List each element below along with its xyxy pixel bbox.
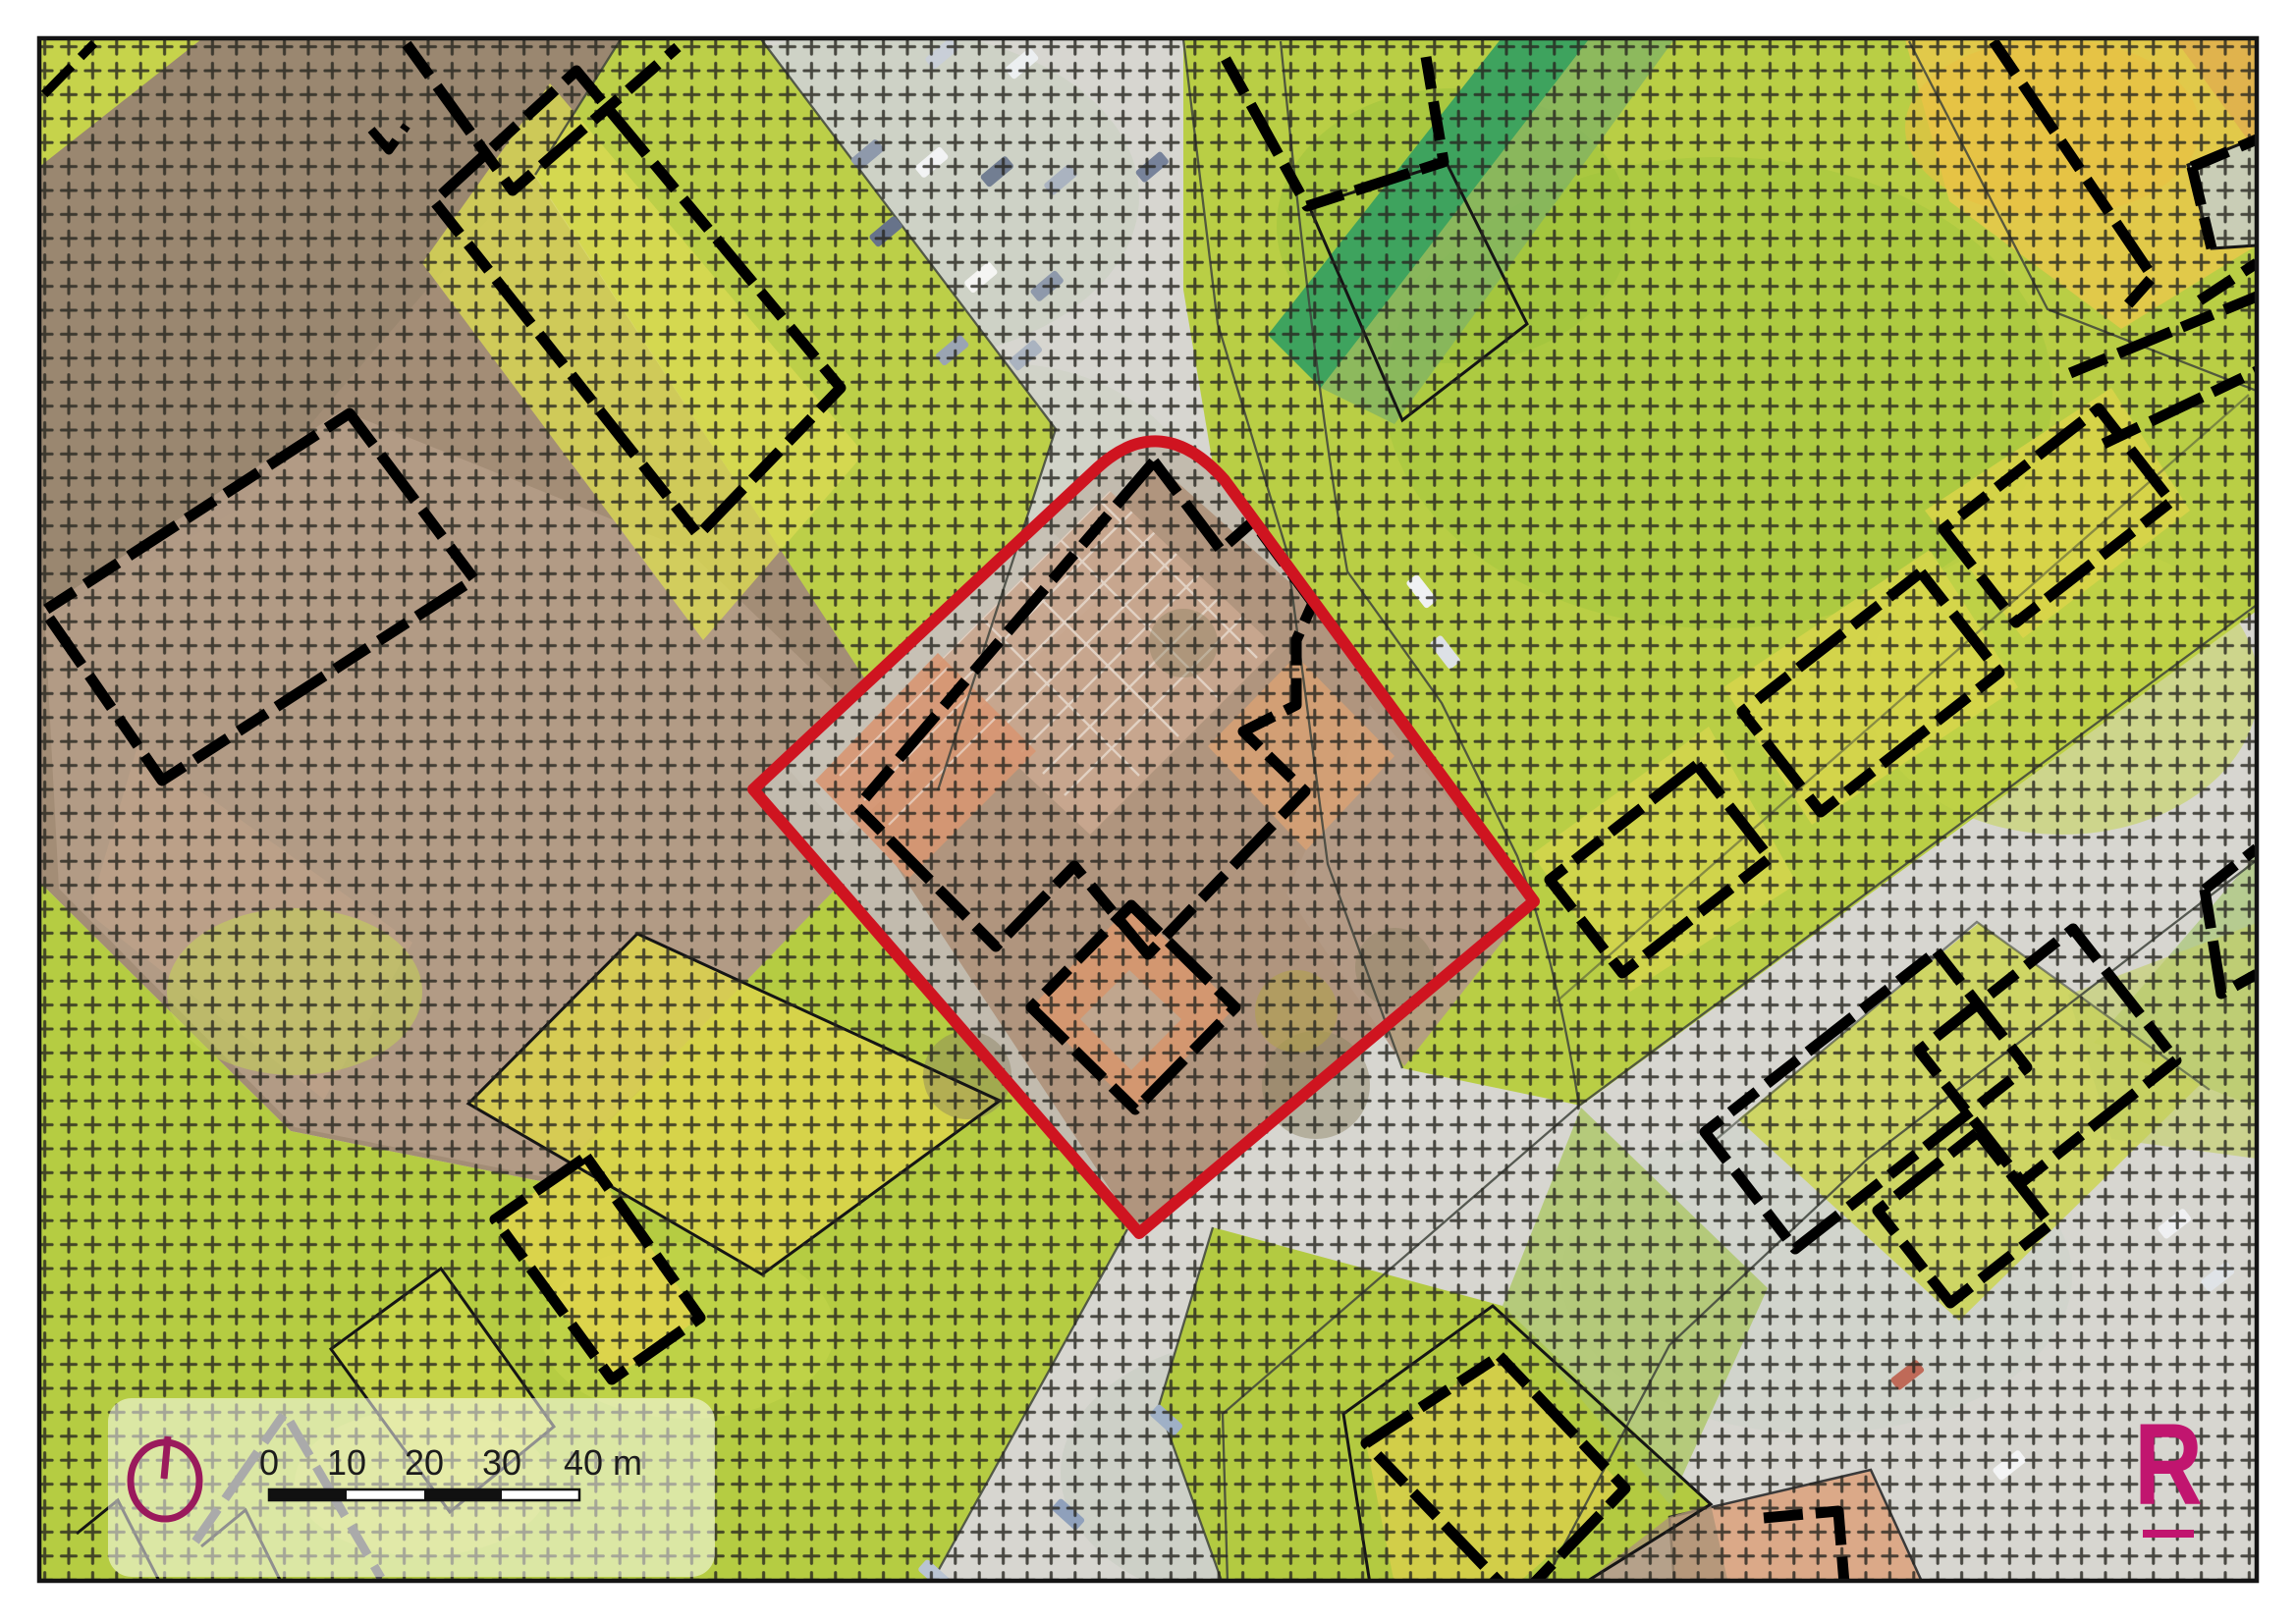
north-needle	[164, 1436, 168, 1479]
scale-bar-segment	[269, 1489, 347, 1500]
scale-label: 0	[259, 1442, 279, 1483]
scale-label: 10	[327, 1442, 366, 1483]
logo-letter: R	[2134, 1399, 2203, 1529]
aerial-site-plan: 0 10 20 30 40 m R	[0, 0, 2296, 1623]
scale-label: 40 m	[564, 1442, 642, 1483]
scale-bar-segment	[347, 1489, 424, 1500]
scale-bar-segment	[502, 1489, 579, 1500]
logo-r: R	[2134, 1399, 2203, 1538]
scale-bar-segment	[424, 1489, 502, 1500]
scale-label: 30	[482, 1442, 521, 1483]
scale-label: 20	[405, 1442, 444, 1483]
legend-panel: 0 10 20 30 40 m	[108, 1398, 715, 1577]
survey-grid-overlay	[39, 38, 2257, 1581]
site-plan-page: 0 10 20 30 40 m R	[0, 0, 2296, 1623]
aerial-basemap: 0 10 20 30 40 m R	[39, 0, 2259, 1610]
logo-underline	[2143, 1530, 2194, 1538]
